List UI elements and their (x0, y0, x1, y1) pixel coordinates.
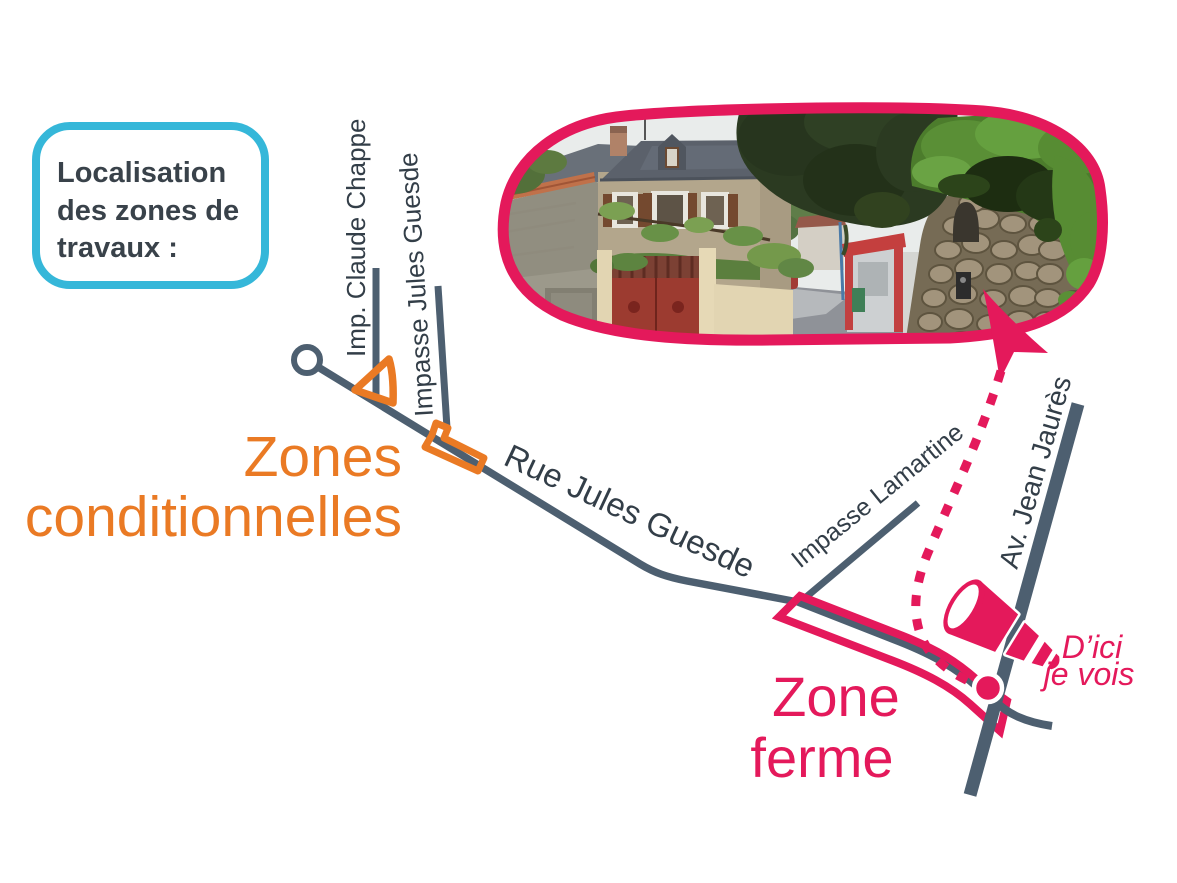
svg-text:je vois: je vois (1040, 656, 1135, 692)
svg-text:Localisation: Localisation (57, 157, 226, 189)
svg-text:travaux :: travaux : (57, 232, 178, 264)
svg-text:Zone: Zone (772, 665, 900, 728)
svg-text:des zones de: des zones de (57, 195, 239, 227)
svg-text:ferme: ferme (750, 726, 893, 789)
svg-text:Imp. Claude Chappe: Imp. Claude Chappe (341, 119, 371, 357)
svg-text:Zones: Zones (244, 425, 402, 489)
svg-text:conditionnelles: conditionnelles (25, 485, 402, 549)
